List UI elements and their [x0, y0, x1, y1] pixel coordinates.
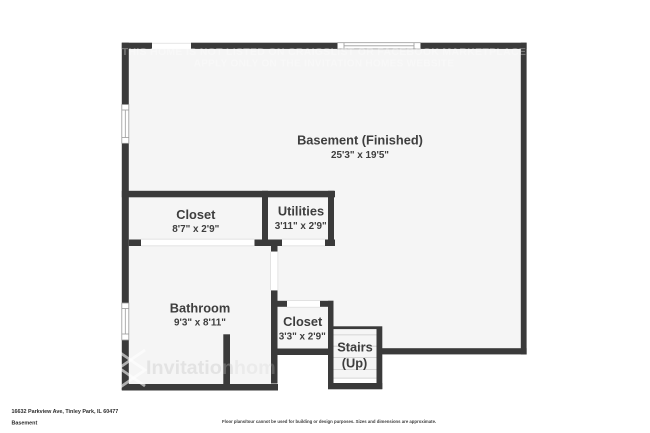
svg-text:(Up): (Up): [342, 355, 368, 370]
svg-text:THIS HOME IS NOT LISTED ON CRA: THIS HOME IS NOT LISTED ON CRAIGSLIST OR…: [122, 46, 526, 58]
svg-text:Basement: Basement: [12, 420, 38, 426]
svg-text:16632 Parkview Ave, Tinley Par: 16632 Parkview Ave, Tinley Park, IL 6047…: [12, 409, 119, 415]
svg-text:Bathroom: Bathroom: [170, 301, 230, 316]
svg-text:Closet: Closet: [176, 207, 216, 222]
svg-text:APPLY ONLY ON THE INVITATION H: APPLY ONLY ON THE INVITATION HOMES WEBSI…: [194, 59, 455, 70]
svg-text:Utilities: Utilities: [278, 204, 324, 219]
svg-text:Stairs: Stairs: [337, 340, 373, 355]
svg-text:8'7" x 2'9": 8'7" x 2'9": [172, 224, 219, 235]
svg-text:25'3" x 19'5": 25'3" x 19'5": [331, 150, 389, 161]
svg-text:Basement (Finished): Basement (Finished): [297, 133, 423, 148]
svg-text:3'11" x 2'9": 3'11" x 2'9": [275, 221, 327, 232]
svg-text:3'3" x 2'9": 3'3" x 2'9": [279, 331, 326, 342]
svg-text:Invitationhom: Invitationhom: [146, 357, 276, 379]
svg-text:Closet: Closet: [283, 314, 323, 329]
svg-text:9'3" x 8'11": 9'3" x 8'11": [174, 317, 226, 328]
svg-text:Floor plans/tour cannot be use: Floor plans/tour cannot be used for buil…: [222, 419, 436, 424]
